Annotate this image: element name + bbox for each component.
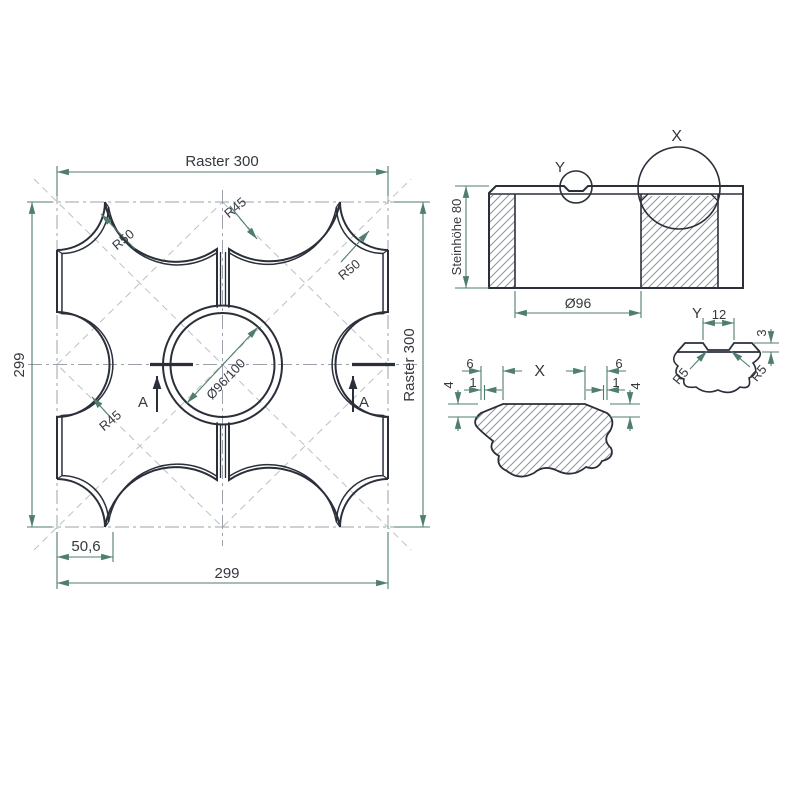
- dim-x-left-6: 6: [466, 356, 473, 371]
- section-hatch-right: [641, 196, 718, 288]
- detail-x-view: X 6 1 4 6 1: [441, 356, 643, 477]
- section-view: Y X Steinhöhe 80 Ø96: [449, 128, 743, 318]
- plan-dimensions: Raster 300 Raster 300 299 299 50,6 R50: [11, 153, 430, 589]
- detail-y-view: Y 12 3 R5 R5: [669, 305, 779, 392]
- dim-x-left-4: 4: [441, 381, 456, 388]
- plan-view: A A Raster 300 Raster 300 299 299: [11, 153, 430, 589]
- dim-y-12: 12: [712, 307, 726, 322]
- dim-x-right-1: 1: [612, 375, 619, 390]
- detail-marker-x: X: [671, 128, 682, 145]
- section-label-a-right: A: [359, 394, 369, 411]
- section-label-a-left: A: [138, 394, 148, 411]
- detail-marker-y: Y: [555, 159, 565, 176]
- radius-top-center: R45: [221, 194, 249, 221]
- radius-right: R50: [335, 256, 363, 283]
- dim-stone-height: Steinhöhe 80: [449, 199, 464, 276]
- dim-y-r5-left: R5: [669, 365, 691, 387]
- radius-left: R45: [96, 407, 124, 434]
- detail-y-surface: [677, 343, 760, 352]
- dim-y-r5-right: R5: [747, 362, 769, 384]
- dim-x-left-1: 1: [469, 375, 476, 390]
- detail-y-title: Y: [692, 305, 702, 322]
- dim-height-left: 299: [11, 352, 28, 377]
- dim-raster-top: Raster 300: [185, 153, 258, 170]
- dim-y-3: 3: [754, 329, 769, 336]
- technical-drawing-page: A A Raster 300 Raster 300 299 299: [0, 0, 800, 800]
- detail-x-material: [475, 404, 612, 477]
- section-hatch-left: [489, 195, 515, 288]
- dim-x-right-6: 6: [615, 356, 622, 371]
- dim-width-bottom: 299: [214, 565, 239, 582]
- dim-x-right-4: 4: [628, 382, 643, 389]
- section-dimensions: Steinhöhe 80 Ø96: [449, 186, 641, 318]
- dim-offset: 50,6: [71, 538, 100, 555]
- detail-x-title: X: [534, 363, 545, 380]
- drawing-canvas: A A Raster 300 Raster 300 299 299: [0, 0, 800, 800]
- dim-bore: Ø96: [565, 295, 592, 311]
- detail-y-dimensions: 12 3 R5 R5: [669, 307, 779, 387]
- dim-raster-right: Raster 300: [401, 328, 418, 401]
- centerlines: [28, 190, 420, 546]
